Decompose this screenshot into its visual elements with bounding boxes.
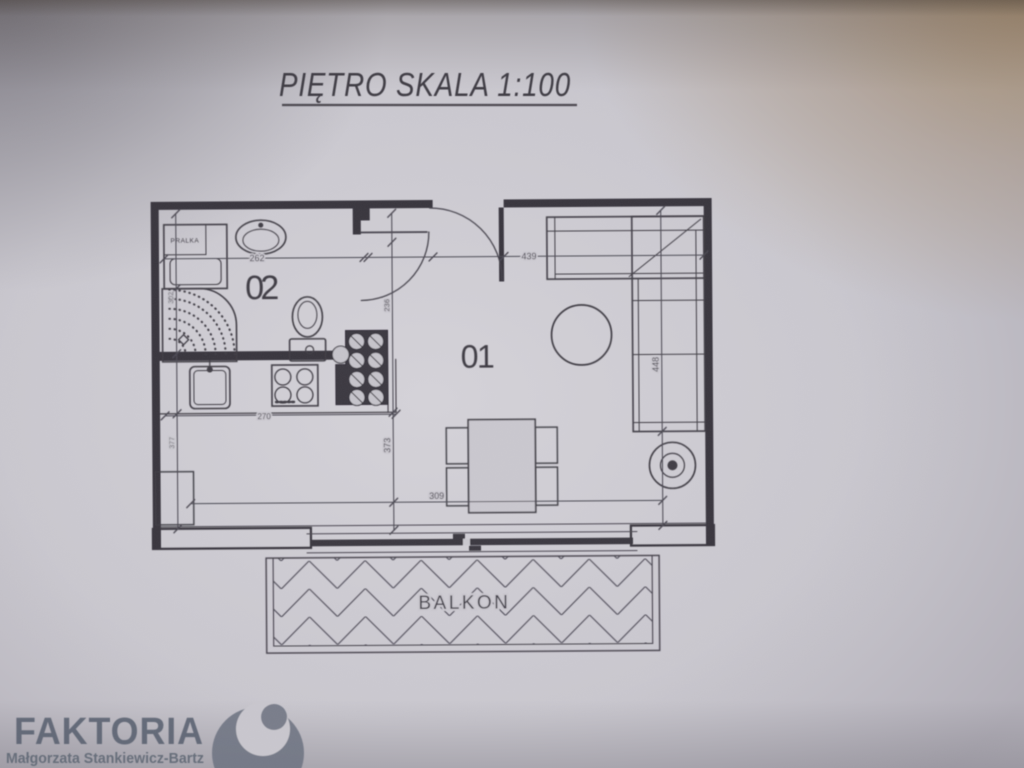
photo-grain-overlay [0,0,1024,768]
floorplan-photo: PIĘTRO SKALA 1:100 [0,0,1024,768]
floorplan-canvas: PIĘTRO SKALA 1:100 [0,0,1024,768]
